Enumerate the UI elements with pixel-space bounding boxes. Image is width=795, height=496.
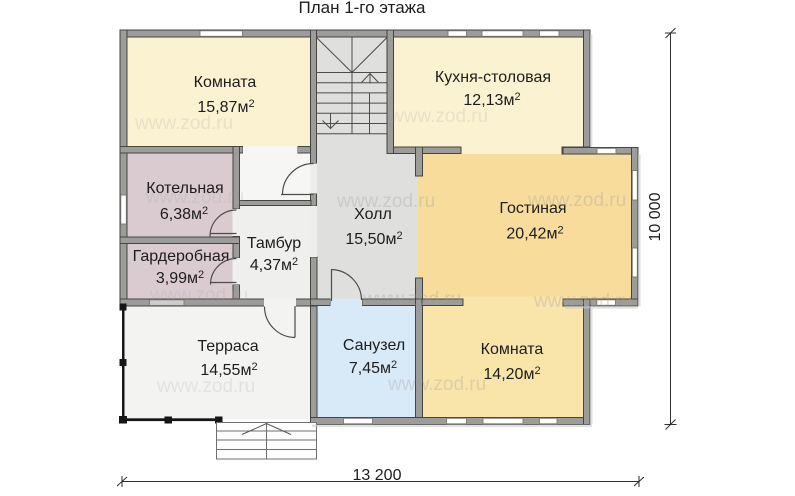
svg-text:www.zod.ru: www.zod.ru <box>149 285 248 306</box>
svg-text:План 1-го этажа: План 1-го этажа <box>298 0 426 17</box>
svg-text:www.zod.ru: www.zod.ru <box>362 289 461 310</box>
svg-text:Терраса: Терраса <box>197 338 258 355</box>
svg-text:www.zod.ru: www.zod.ru <box>156 376 255 397</box>
svg-text:www.zod.ru: www.zod.ru <box>145 187 244 208</box>
svg-text:4,37м2: 4,37м2 <box>250 256 298 274</box>
svg-text:www.zod.ru: www.zod.ru <box>387 374 486 395</box>
svg-text:www.zod.ru: www.zod.ru <box>389 106 488 127</box>
svg-text:Комната: Комната <box>194 74 257 91</box>
svg-text:13 200: 13 200 <box>353 467 402 484</box>
svg-text:Комната: Комната <box>481 341 544 358</box>
svg-text:www.zod.ru: www.zod.ru <box>527 190 626 211</box>
svg-text:www.zod.ru: www.zod.ru <box>533 291 632 312</box>
svg-text:Кухня-столовая: Кухня-столовая <box>435 69 551 86</box>
svg-text:15,50м2: 15,50м2 <box>345 230 402 248</box>
svg-text:14,20м2: 14,20м2 <box>483 365 540 383</box>
svg-text:10 000: 10 000 <box>647 192 664 241</box>
svg-text:20,42м2: 20,42м2 <box>506 225 563 243</box>
svg-text:Гардеробная: Гардеробная <box>133 248 230 265</box>
svg-text:www.zod.ru: www.zod.ru <box>134 113 233 134</box>
svg-text:Тамбур: Тамбур <box>247 235 301 252</box>
svg-text:www.zod.ru: www.zod.ru <box>336 191 435 212</box>
svg-text:Санузел: Санузел <box>343 337 405 354</box>
